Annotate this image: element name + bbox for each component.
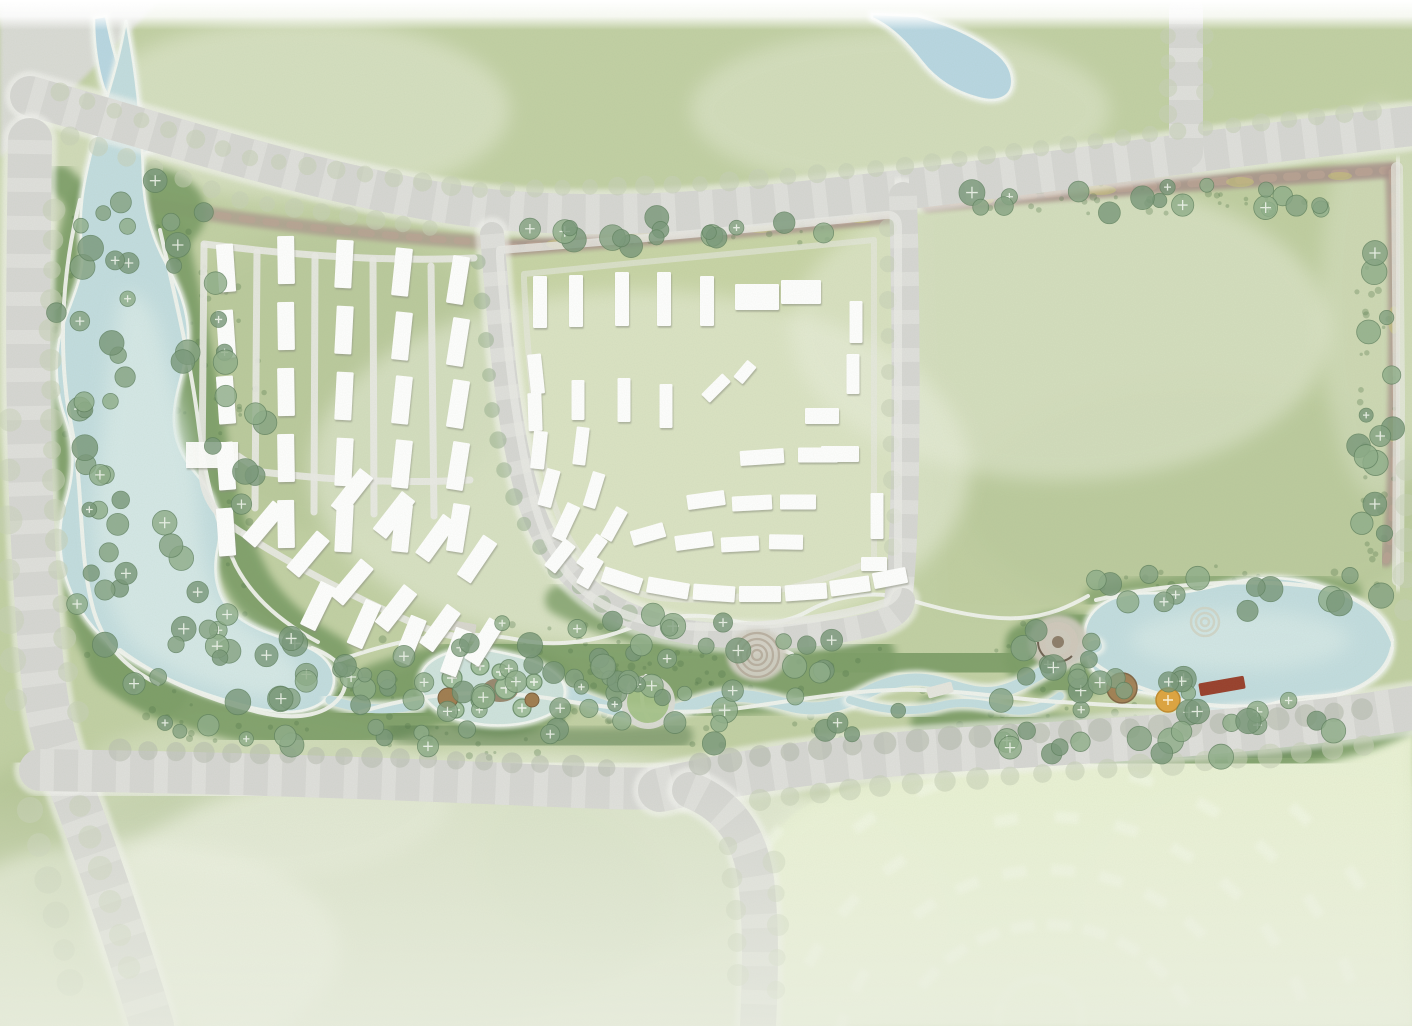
top-white-band [0, 0, 1412, 30]
site-plan-canvas [0, 0, 1412, 1026]
bottom-haze [0, 790, 1412, 1026]
site-plan-map [0, 0, 1412, 1026]
